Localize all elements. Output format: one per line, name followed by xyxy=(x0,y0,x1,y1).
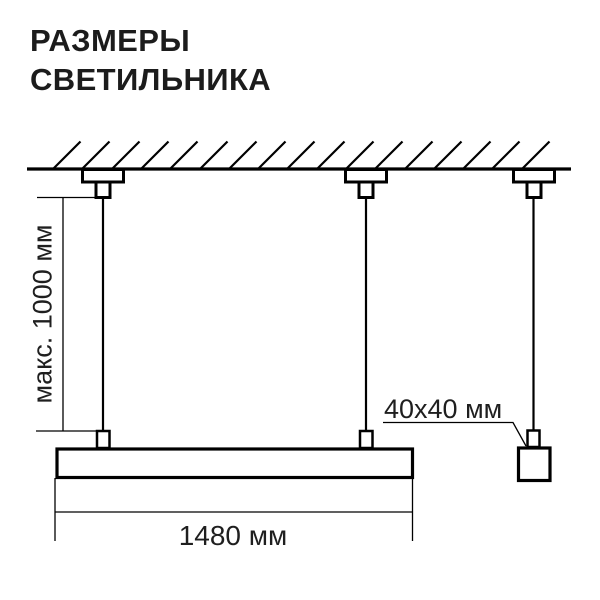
screenshot-root: РАЗМЕРЫ СВЕТИЛЬНИКА xyxy=(0,0,600,600)
suspension-mount-left xyxy=(83,170,124,198)
wire-connector-right xyxy=(528,431,540,448)
mount-plate xyxy=(514,170,555,183)
mount-stem xyxy=(96,182,110,198)
mount-plate xyxy=(83,170,124,183)
luminaire-dimensions-diagram xyxy=(0,0,600,600)
wire-connector-middle xyxy=(360,431,373,448)
ceiling-hatching xyxy=(53,142,550,170)
ceiling xyxy=(27,142,571,170)
wire-connector-left xyxy=(97,431,110,448)
suspension-mount-right xyxy=(514,170,555,198)
suspension-mount-middle xyxy=(346,170,387,198)
mount-stem xyxy=(527,182,541,198)
mount-stem xyxy=(359,182,373,198)
mount-plate xyxy=(346,170,387,183)
profile-square xyxy=(519,448,551,481)
profile-leader-line xyxy=(383,423,526,447)
profile-size-label: 40x40 мм xyxy=(384,394,502,425)
length-dimension-label: 1480 мм xyxy=(179,520,288,552)
luminaire-body xyxy=(57,449,413,478)
max-height-dimension-label: макс. 1000 мм xyxy=(28,225,59,404)
